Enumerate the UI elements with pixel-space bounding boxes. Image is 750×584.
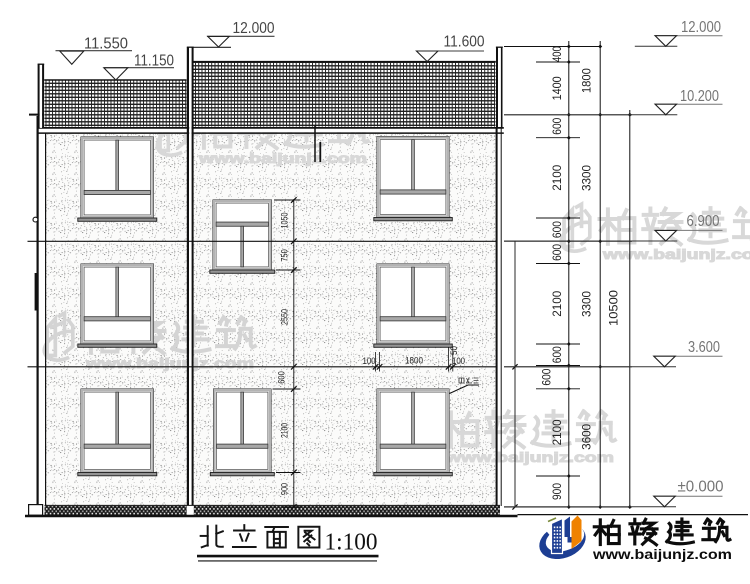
svg-text:www.baijunjz.com: www.baijunjz.com bbox=[592, 547, 732, 562]
svg-text:±0.000: ±0.000 bbox=[678, 479, 724, 496]
svg-text:600: 600 bbox=[552, 118, 564, 135]
svg-text:2100: 2100 bbox=[552, 291, 564, 317]
svg-text:11.550: 11.550 bbox=[84, 35, 128, 52]
svg-text:12.000: 12.000 bbox=[233, 20, 275, 37]
svg-text:3.600: 3.600 bbox=[688, 339, 720, 356]
svg-text:1800: 1800 bbox=[405, 355, 423, 365]
svg-text:100: 100 bbox=[363, 356, 376, 366]
svg-text:400: 400 bbox=[552, 46, 564, 62]
svg-text:3600: 3600 bbox=[582, 424, 594, 450]
svg-text:10500: 10500 bbox=[607, 290, 621, 326]
svg-text:2100: 2100 bbox=[280, 423, 290, 438]
svg-text:6.900: 6.900 bbox=[687, 213, 720, 230]
svg-text:2550: 2550 bbox=[280, 309, 290, 325]
svg-text:10.200: 10.200 bbox=[680, 88, 719, 105]
svg-text:3300: 3300 bbox=[582, 165, 594, 191]
svg-text:2100: 2100 bbox=[552, 165, 564, 191]
svg-text:11.600: 11.600 bbox=[444, 33, 485, 50]
svg-text:11.150: 11.150 bbox=[134, 53, 174, 70]
svg-text:3300: 3300 bbox=[582, 291, 594, 317]
svg-text:50: 50 bbox=[449, 346, 459, 355]
svg-text:900: 900 bbox=[552, 483, 564, 500]
svg-text:1400: 1400 bbox=[552, 76, 564, 100]
svg-text:2100: 2100 bbox=[552, 419, 564, 445]
svg-text:100: 100 bbox=[452, 356, 465, 366]
svg-text:600: 600 bbox=[552, 221, 564, 238]
svg-text:12.000: 12.000 bbox=[681, 19, 721, 36]
svg-text:1050: 1050 bbox=[280, 213, 290, 229]
svg-text:600: 600 bbox=[277, 371, 287, 384]
svg-text:600: 600 bbox=[552, 346, 564, 363]
svg-text:1800: 1800 bbox=[582, 68, 594, 93]
svg-text:900: 900 bbox=[280, 483, 290, 495]
svg-text:750: 750 bbox=[280, 249, 290, 262]
svg-text:1:100: 1:100 bbox=[325, 530, 378, 556]
svg-text:600: 600 bbox=[542, 369, 554, 386]
svg-text:600: 600 bbox=[552, 244, 564, 261]
